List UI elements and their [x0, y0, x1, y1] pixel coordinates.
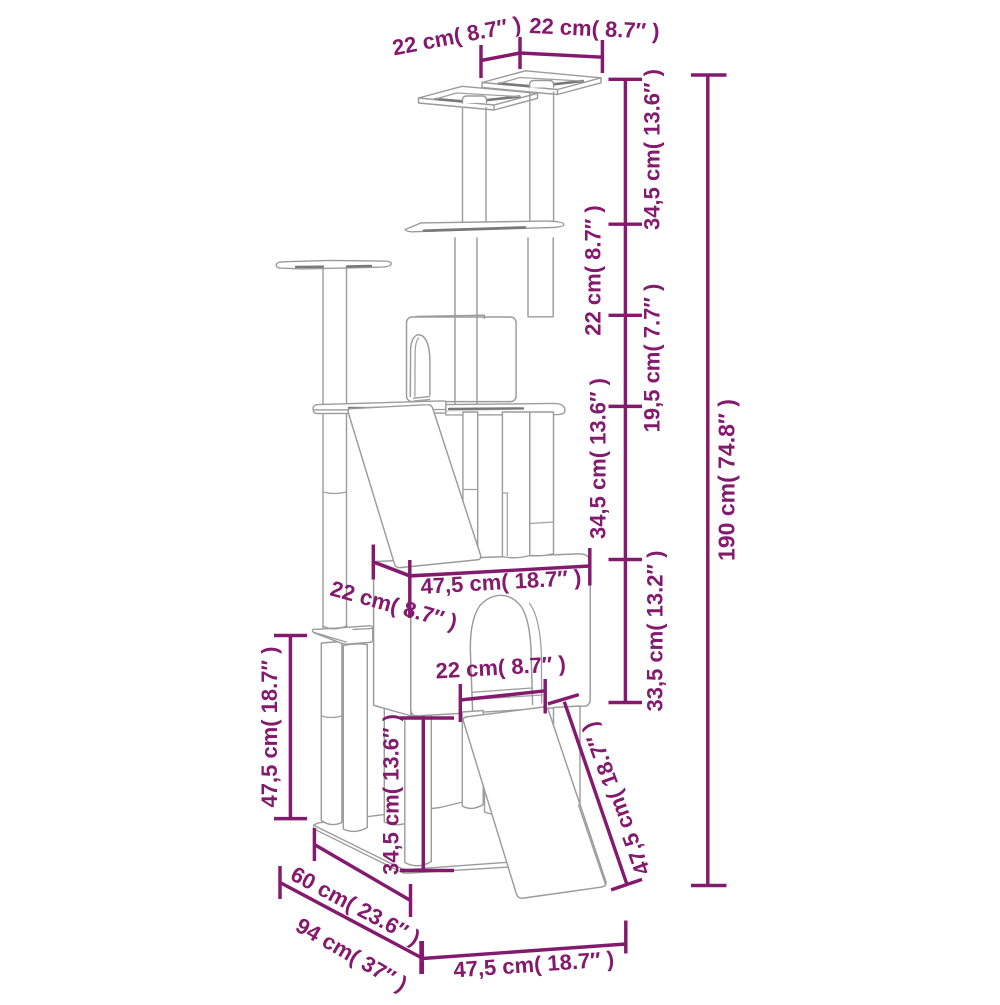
svg-text:34,5 cm( 13.6″ ): 34,5 cm( 13.6″ ) [586, 378, 611, 539]
svg-text:47,5 cm( 18.7″ ): 47,5 cm( 18.7″ ) [257, 647, 282, 808]
svg-text:19,5 cm( 7.7″ ): 19,5 cm( 7.7″ ) [640, 284, 665, 433]
svg-text:34,5 cm( 13.6″ ): 34,5 cm( 13.6″ ) [640, 69, 665, 230]
svg-text:33,5 cm( 13.2″ ): 33,5 cm( 13.2″ ) [643, 551, 668, 712]
svg-text:22 cm( 8.7″ ): 22 cm( 8.7″ ) [581, 205, 606, 335]
svg-text:34,5 cm( 13.6″ ): 34,5 cm( 13.6″ ) [379, 714, 404, 875]
svg-text:190 cm( 74.8″ ): 190 cm( 74.8″ ) [714, 399, 740, 561]
